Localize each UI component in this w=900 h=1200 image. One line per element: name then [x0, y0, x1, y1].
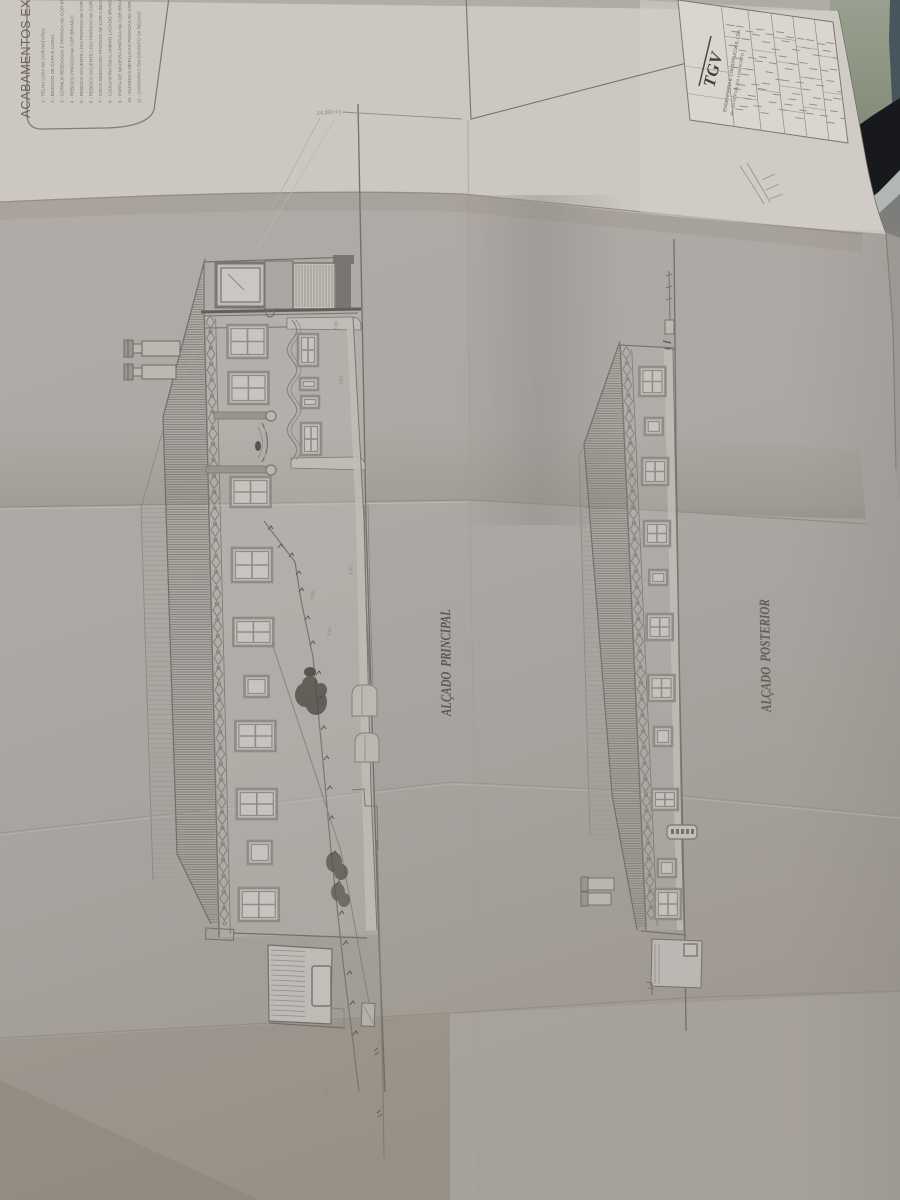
- svg-text:3.50: 3.50: [348, 565, 354, 575]
- svg-text:ALÇADO PRINCIPAL: ALÇADO PRINCIPAL: [438, 609, 455, 717]
- svg-text:9 - PORTA DE MADEIRA PINTADA: 9 - PORTA DE MADEIRA PINTADA NA COR BRAN…: [117, 0, 122, 103]
- svg-text:8 - CAIXILHARIA EM ALUMINIO L: 8 - CAIXILHARIA EM ALUMINIO LACADO BRANC…: [108, 0, 113, 103]
- svg-text:7 - SOCO REBOCADO PINTADO NA: 7 - SOCO REBOCADO PINTADO NA COR CINZA: [98, 0, 103, 103]
- svg-text:10 - GUARDAS METALICAS PINTAD: 10 - GUARDAS METALICAS PINTADAS NA COR P…: [127, 0, 132, 103]
- svg-text:3.50: 3.50: [377, 1036, 383, 1046]
- svg-text:2 - BEIRADO DE CAPA E CANAL: 2 - BEIRADO DE CAPA E CANAL: [50, 33, 55, 103]
- svg-text:4 - REBOCO PINTADO NA COR BRA: 4 - REBOCO PINTADO NA COR BRANCO: [69, 15, 74, 103]
- svg-text:11 - CANTARIAS EM GRANITO DA: 11 - CANTARIAS EM GRANITO DA REGIAO: [137, 11, 142, 103]
- svg-text:3.50: 3.50: [338, 375, 344, 385]
- svg-text:3 - CORNIJA REBOCADA E PINTAD: 3 - CORNIJA REBOCADA E PINTADA NA COR BR…: [60, 0, 65, 103]
- svg-text:3.50: 3.50: [333, 320, 339, 330]
- svg-text:ALÇADO POSTERIOR: ALÇADO POSTERIOR: [757, 599, 775, 713]
- svg-text:ACABAMENTOS EXTERIORES: ACABAMENTOS EXTERIORES: [19, 0, 33, 118]
- svg-text:5 - REBOCO SALIENTE LISO PINT: 5 - REBOCO SALIENTE LISO PINTADO NA COR …: [79, 0, 84, 103]
- svg-text:6 - REBOCO SALIENTE LISO PINT: 6 - REBOCO SALIENTE LISO PINTADO NA COR …: [89, 0, 94, 103]
- svg-text:1 - TELHA LUSA NA COR NATURAL: 1 - TELHA LUSA NA COR NATURAL: [41, 27, 46, 103]
